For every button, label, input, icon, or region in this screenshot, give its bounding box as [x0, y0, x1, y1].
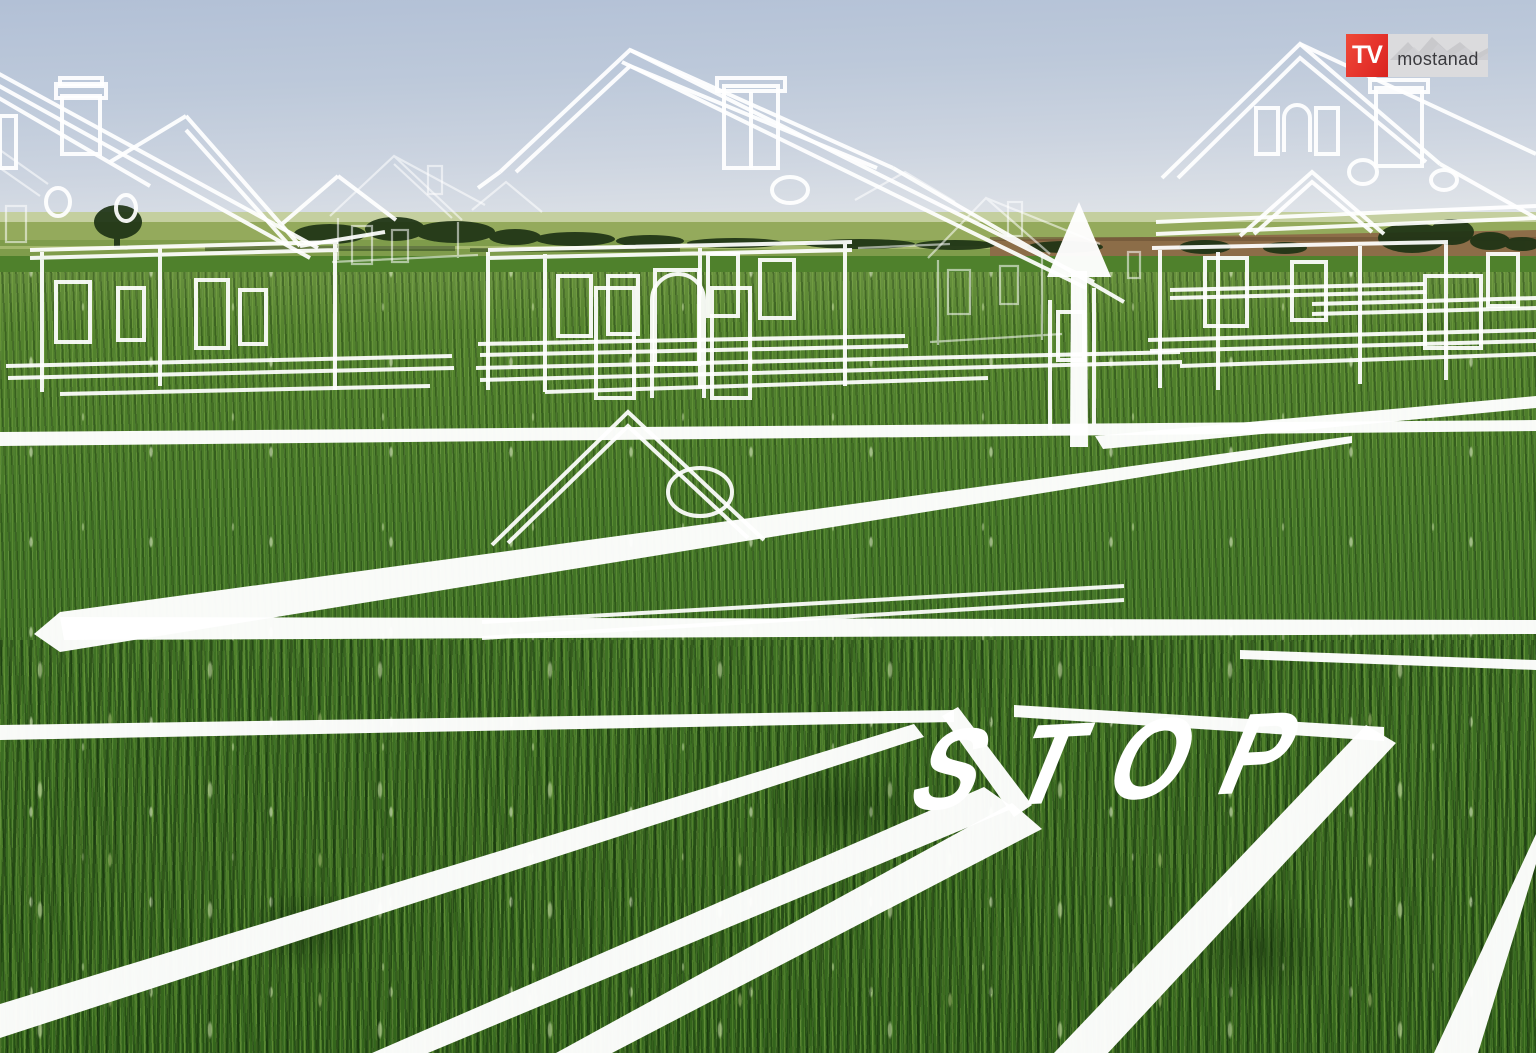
up-arrow-sign-icon: [1047, 202, 1111, 447]
tv-logo: TV mostanad: [1346, 34, 1488, 77]
ad-image: STOP TV mostanad: [0, 0, 1536, 1053]
tv-logo-red-box: TV: [1346, 34, 1388, 77]
road-line-zigzag-lower: [60, 617, 1536, 640]
road-markings: STOP: [0, 0, 1536, 1053]
tv-logo-label: TV: [1352, 41, 1382, 70]
tv-logo-brand-label: mostanad: [1397, 50, 1478, 68]
lane-line-right-corner: [1434, 834, 1536, 1053]
road-line-right-short: [1240, 650, 1536, 670]
stop-bar: [556, 803, 1042, 1053]
road-line-near-edge-left: [0, 710, 954, 740]
tv-logo-brand-box: mostanad: [1388, 34, 1488, 77]
stop-text: STOP: [893, 684, 1355, 836]
